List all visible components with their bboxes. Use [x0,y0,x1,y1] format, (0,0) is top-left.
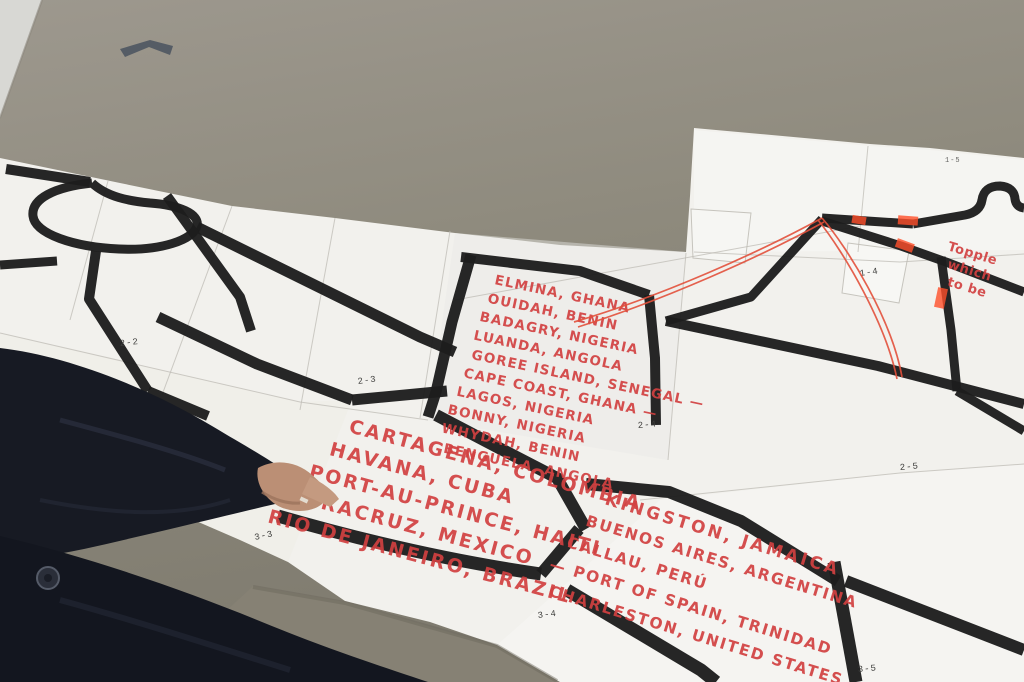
jacket-button-center [44,574,52,582]
map-line [0,261,57,265]
highlight-mark [898,215,919,225]
tile-label: 2-5 [899,461,919,473]
tile-label: 3-5 [857,663,877,675]
photo-paper-map-scene: 2-2 2-3 2-4 2-5 3-3 3-4 3-5 1-4 1-5 ELMI… [0,0,1024,682]
tile-label: 2-2 [119,337,139,349]
tile-label: 1-5 [945,157,961,165]
scene-canvas: 2-2 2-3 2-4 2-5 3-3 3-4 3-5 1-4 1-5 ELMI… [0,0,1024,682]
